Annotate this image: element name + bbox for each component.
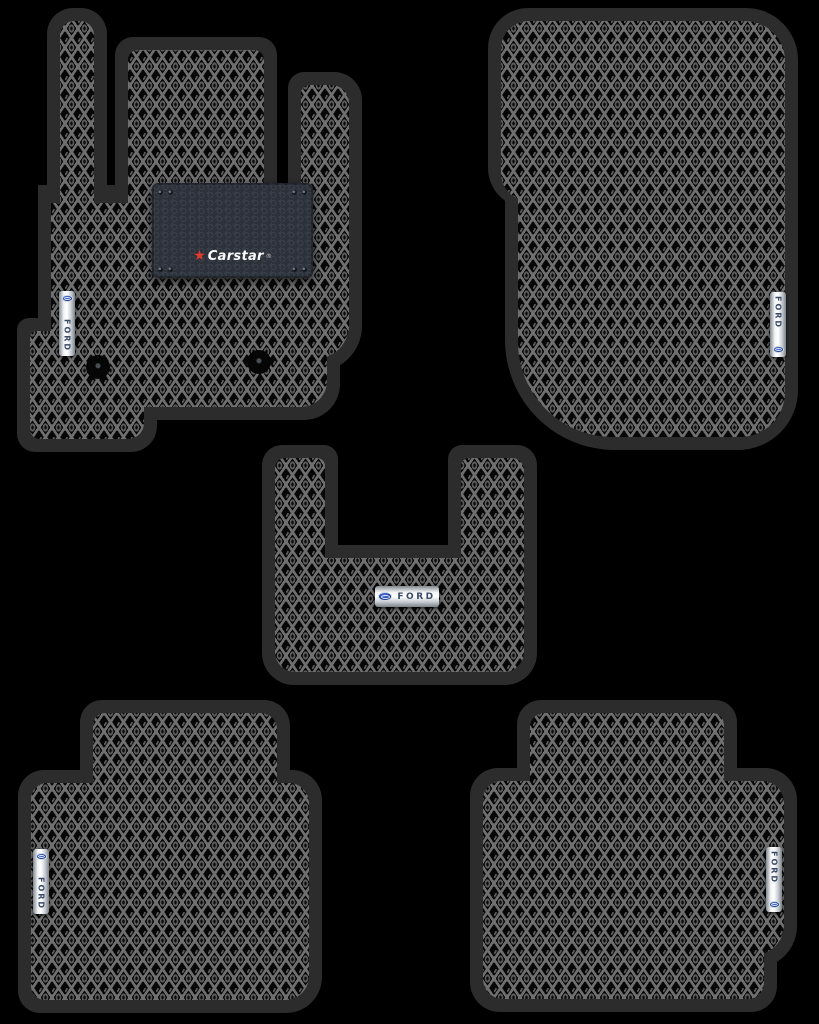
ford-oval-script bbox=[381, 595, 390, 599]
rear-left-mat-field-body bbox=[31, 783, 309, 1000]
ford-badge-passenger: FORD bbox=[770, 292, 786, 357]
ford-oval-icon bbox=[769, 901, 780, 908]
ford-badge-text: FORD bbox=[770, 851, 779, 884]
product-photo-canvas: ★ Carstar ® FORD FORD bbox=[0, 0, 819, 1024]
ford-oval-script bbox=[775, 348, 782, 351]
fastener-clip-right bbox=[247, 350, 271, 374]
ford-oval-script bbox=[64, 297, 71, 300]
carstar-star-icon: ★ bbox=[193, 249, 206, 263]
registered-mark: ® bbox=[266, 253, 272, 260]
ford-badge-rear-left: FORD bbox=[33, 849, 49, 914]
rivet bbox=[292, 267, 297, 272]
ford-oval-script bbox=[771, 903, 778, 906]
tunnel-mat-notch bbox=[338, 430, 448, 545]
rivet bbox=[158, 267, 163, 272]
fastener-clip-left bbox=[86, 355, 110, 379]
carstar-wordmark: Carstar bbox=[208, 249, 264, 264]
ford-oval-icon bbox=[62, 295, 73, 302]
rear-right-mat-field-lower bbox=[483, 893, 764, 999]
rivet bbox=[158, 190, 163, 195]
carstar-logo: ★ Carstar ® bbox=[152, 249, 313, 264]
rivet bbox=[168, 190, 173, 195]
ford-oval-script bbox=[38, 855, 45, 858]
ford-badge-text: FORD bbox=[774, 296, 783, 329]
ford-oval-icon bbox=[773, 346, 784, 353]
ford-oval-icon bbox=[378, 592, 392, 601]
ford-badge-tunnel: FORD bbox=[375, 586, 439, 607]
rivet bbox=[168, 267, 173, 272]
rivet bbox=[302, 190, 307, 195]
ford-badge-text: FORD bbox=[37, 877, 46, 910]
carstar-patch: ★ Carstar ® bbox=[152, 183, 313, 278]
ford-badge-text: FORD bbox=[397, 592, 435, 602]
passenger-mat-field-body bbox=[518, 133, 785, 437]
driver-mat-field-heel bbox=[30, 331, 144, 439]
ford-badge-driver: FORD bbox=[59, 291, 75, 356]
rivet bbox=[302, 267, 307, 272]
ford-badge-text: FORD bbox=[63, 319, 72, 352]
rivet bbox=[292, 190, 297, 195]
ford-oval-icon bbox=[36, 853, 47, 860]
tunnel-mat-field-body bbox=[275, 558, 524, 672]
ford-badge-rear-right: FORD bbox=[766, 847, 782, 912]
